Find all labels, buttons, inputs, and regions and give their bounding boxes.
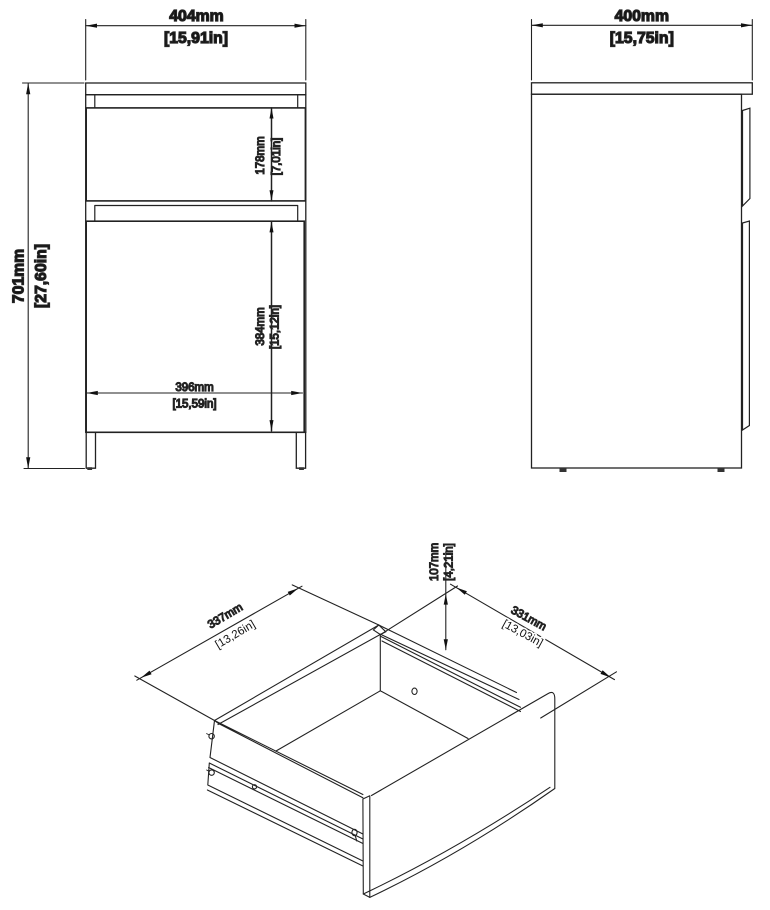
svg-text:400mm: 400mm <box>615 8 669 25</box>
svg-text:[15,75in]: [15,75in] <box>610 30 674 47</box>
svg-text:701mm: 701mm <box>11 249 28 303</box>
svg-text:[7,01in]: [7,01in] <box>271 138 283 176</box>
svg-text:[4,21in]: [4,21in] <box>444 543 456 581</box>
svg-text:404mm: 404mm <box>169 8 223 25</box>
svg-text:107mm: 107mm <box>429 543 441 581</box>
svg-text:396mm: 396mm <box>175 382 213 394</box>
svg-text:178mm: 178mm <box>255 136 267 174</box>
svg-text:[27,60in]: [27,60in] <box>33 244 50 308</box>
svg-text:384mm: 384mm <box>255 307 267 345</box>
svg-text:[15,59in]: [15,59in] <box>172 399 216 411</box>
svg-text:[15,91in]: [15,91in] <box>164 30 228 47</box>
svg-text:[15,12in]: [15,12in] <box>270 305 282 349</box>
